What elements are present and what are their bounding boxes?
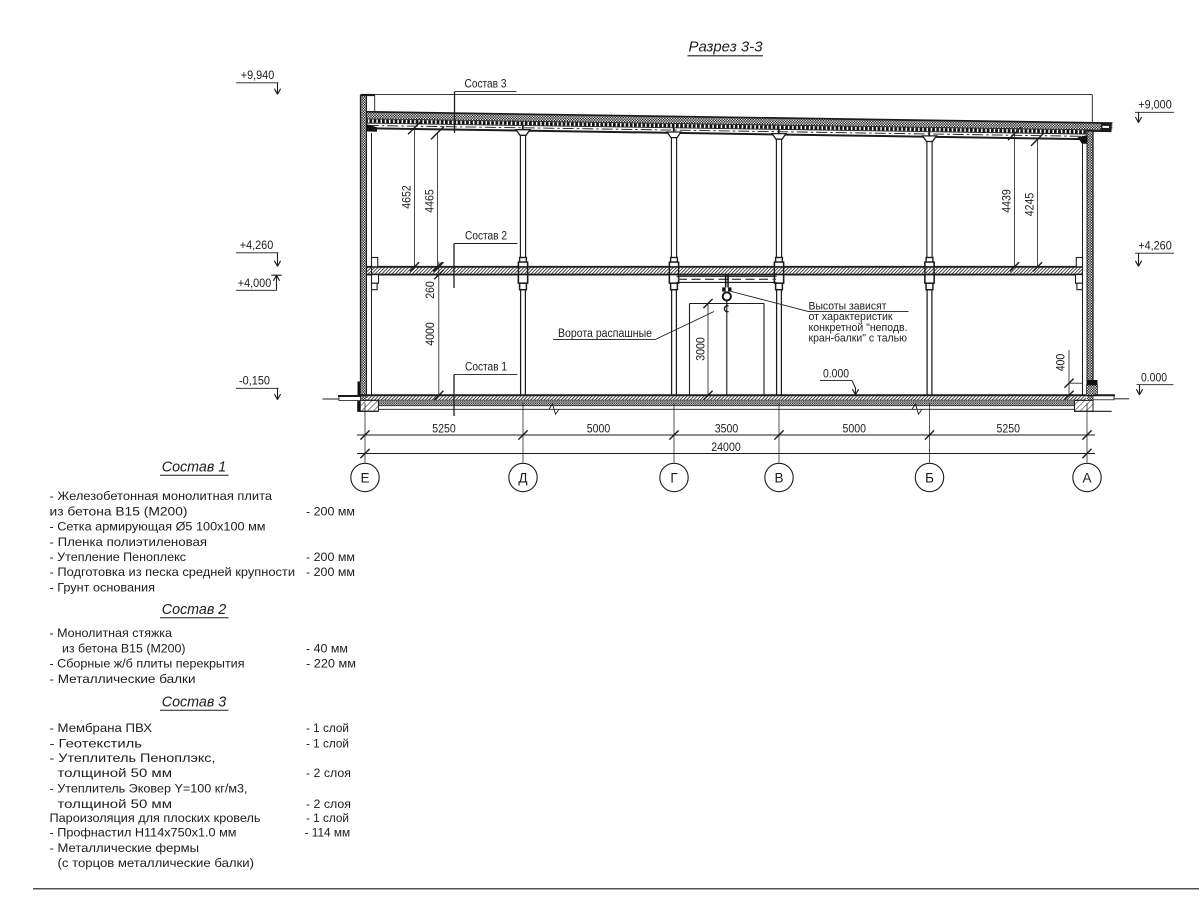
svg-text:- Пленка полиэтиленовая: - Пленка полиэтиленовая [50, 535, 208, 549]
svg-text:- 2 слоя: - 2 слоя [306, 797, 351, 811]
svg-text:400: 400 [1054, 353, 1068, 371]
svg-text:Разрез 3-3: Разрез 3-3 [689, 39, 764, 56]
svg-text:- Монолитная стяжка: - Монолитная стяжка [50, 626, 173, 640]
svg-text:- Сетка армирующая Ø5 100х100: - Сетка армирующая Ø5 100х100 мм [50, 520, 266, 534]
svg-text:- Сборные ж/б плиты перекрытия: - Сборные ж/б плиты перекрытия [50, 657, 245, 671]
svg-text:5000: 5000 [587, 421, 611, 435]
svg-text:- 114 мм: - 114 мм [305, 826, 351, 840]
svg-text:- Металлические фермы: - Металлические фермы [50, 841, 200, 855]
svg-text:- Профнастил Н114х750х1.0 мм: - Профнастил Н114х750х1.0 мм [50, 826, 237, 840]
svg-text:Г: Г [670, 470, 678, 485]
svg-text:- Подготовка из песка средней: - Подготовка из песка средней крупности [50, 565, 296, 579]
svg-text:- 200 мм: - 200 мм [306, 550, 355, 564]
svg-text:- 1 слой: - 1 слой [306, 811, 349, 825]
svg-text:Состав 3: Состав 3 [465, 77, 507, 91]
svg-text:Б: Б [925, 470, 934, 485]
svg-text:- Утеплитель Эковер Y=100 кг/м: - Утеплитель Эковер Y=100 кг/м3, [50, 782, 248, 796]
svg-text:- 1 слой: - 1 слой [306, 721, 349, 735]
svg-text:+9,940: +9,940 [241, 68, 275, 82]
svg-text:Состав 1: Состав 1 [162, 459, 227, 475]
svg-text:- 220 мм: - 220 мм [306, 657, 356, 671]
svg-text:Ворота распашные: Ворота распашные [558, 328, 652, 340]
svg-text:- 200 мм: - 200 мм [306, 565, 355, 579]
svg-text:из бетона В15 (М200): из бетона В15 (М200) [62, 641, 186, 655]
svg-text:- Железобетонная монолитная п: - Железобетонная монолитная плита [50, 489, 273, 503]
svg-text:- Мембрана ПВХ: - Мембрана ПВХ [50, 721, 153, 735]
svg-text:Состав 3: Состав 3 [162, 694, 227, 710]
svg-text:0.000: 0.000 [1141, 370, 1167, 384]
svg-text:- 40 мм: - 40 мм [306, 641, 348, 655]
svg-text:- 2 слоя: - 2 слоя [306, 766, 351, 780]
svg-text:Состав 2: Состав 2 [465, 229, 507, 243]
svg-text:3500: 3500 [715, 421, 739, 435]
svg-text:+4,000: +4,000 [238, 276, 272, 290]
svg-text:- Геотекстиль: - Геотекстиль [50, 737, 143, 751]
svg-text:-0,150: -0,150 [239, 374, 270, 388]
svg-text:+4,260: +4,260 [240, 238, 274, 252]
svg-text:4000: 4000 [423, 322, 437, 346]
svg-text:- Грунт основания: - Грунт основания [50, 580, 156, 594]
svg-text:5000: 5000 [843, 421, 867, 435]
svg-text:5250: 5250 [997, 421, 1021, 435]
svg-text:кран-балки" с талью: кран-балки" с талью [809, 333, 908, 345]
svg-text:из бетона В15 (М200): из бетона В15 (М200) [50, 504, 188, 518]
svg-text:4652: 4652 [400, 185, 414, 209]
svg-text:В: В [774, 470, 783, 485]
svg-text:4245: 4245 [1023, 192, 1037, 216]
svg-text:260: 260 [423, 281, 437, 299]
svg-text:Е: Е [360, 470, 369, 485]
svg-text:- Утепление Пеноплекс: - Утепление Пеноплекс [50, 550, 187, 564]
svg-text:5250: 5250 [432, 421, 456, 435]
svg-text:- 200 мм: - 200 мм [306, 504, 355, 518]
svg-text:Пароизоляция для плоских крове: Пароизоляция для плоских кровель [50, 811, 261, 825]
svg-text:Д: Д [518, 470, 527, 485]
svg-text:24000: 24000 [711, 440, 741, 454]
svg-text:- Утеплитель Пеноплэкс,: - Утеплитель Пеноплэкс, [50, 751, 216, 765]
svg-text:3000: 3000 [694, 337, 708, 361]
svg-text:+4,260: +4,260 [1138, 239, 1172, 253]
svg-text:толщиной 50 мм: толщиной 50 мм [58, 766, 173, 780]
svg-text:Состав 2: Состав 2 [162, 602, 227, 618]
svg-text:- 1 слой: - 1 слой [306, 737, 349, 751]
svg-text:Состав 1: Состав 1 [465, 360, 507, 374]
svg-text:4465: 4465 [423, 189, 437, 213]
svg-text:+9,000: +9,000 [1138, 98, 1172, 112]
svg-text:(с торцов металлические балки): (с торцов металлические балки) [58, 856, 255, 870]
svg-text:- Металлические балки: - Металлические балки [50, 672, 196, 686]
svg-text:4439: 4439 [1000, 189, 1014, 213]
svg-text:А: А [1082, 470, 1091, 485]
svg-text:толщиной 50 мм: толщиной 50 мм [58, 797, 173, 811]
svg-text:0.000: 0.000 [823, 366, 849, 380]
